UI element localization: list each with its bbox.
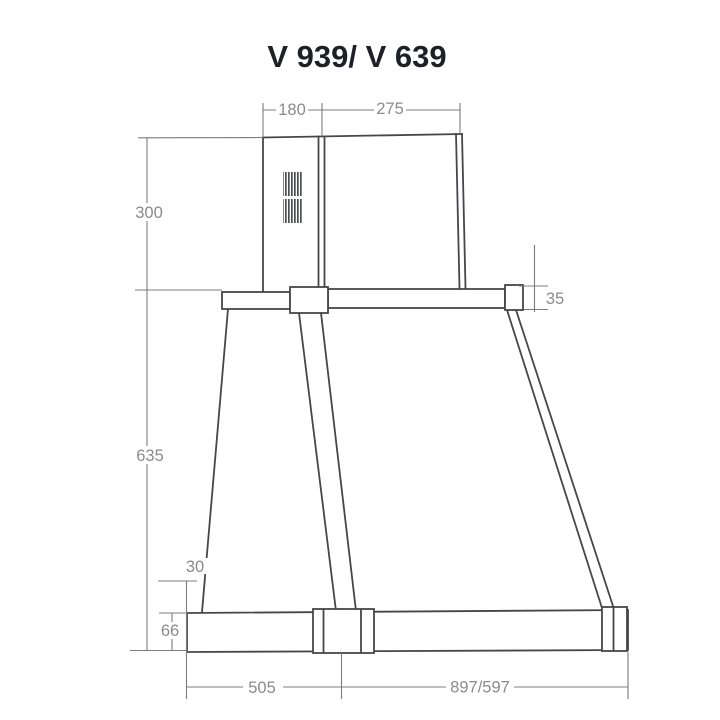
chimney [263, 134, 466, 292]
dim-top-frame-thickness-label: 35 [546, 290, 564, 308]
canopy-front-right-edge-outer [299, 313, 336, 611]
drawing-page: V 939/ V 639 [0, 0, 720, 720]
bottom-frame [187, 607, 628, 653]
dim-bottom-widths: 505 897/597 [187, 652, 629, 699]
bottom-frame-rail [187, 610, 628, 652]
dim-body-height-label: 635 [136, 447, 164, 465]
bottom-frame-right-corner-block [602, 607, 627, 651]
chimney-right-edge-outer [456, 134, 460, 288]
top-frame-front-corner-block [290, 287, 328, 313]
bottom-frame-front-corner-block [313, 609, 374, 653]
chimney-right-edge-inner [462, 134, 466, 288]
hood-dimension-diagram: V 939/ V 639 [0, 0, 720, 720]
vent-grille-lower [283, 199, 302, 223]
dim-top-frame-thickness: 35 [519, 245, 564, 312]
dim-chimney-height-label: 300 [135, 204, 163, 222]
top-frame-right-rail [328, 289, 505, 308]
vent-grille-upper [283, 172, 302, 196]
dim-bottom-width-variants-label: 897/597 [450, 679, 510, 697]
dim-bottom-front-offset-label: 30 [186, 558, 204, 576]
page-title: V 939/ V 639 [267, 39, 446, 74]
canopy-right-edge-outer [507, 310, 602, 608]
canopy-legs [202, 309, 614, 612]
chimney-top-edge [263, 134, 462, 138]
top-frame-right-corner-block [505, 285, 523, 310]
canopy-front-right-edge-inner [321, 313, 356, 611]
dim-top-widths: 180 275 [263, 99, 460, 137]
top-frame [222, 285, 523, 313]
dim-bottom-depth-label: 505 [248, 679, 276, 697]
top-frame-left-rail [222, 292, 290, 309]
dim-chimney-front-width-label: 180 [278, 101, 306, 119]
dim-chimney-side-depth-label: 275 [376, 100, 404, 118]
canopy-right-edge-inner [516, 310, 614, 608]
dim-bottom-frame-height-label: 66 [161, 622, 179, 640]
